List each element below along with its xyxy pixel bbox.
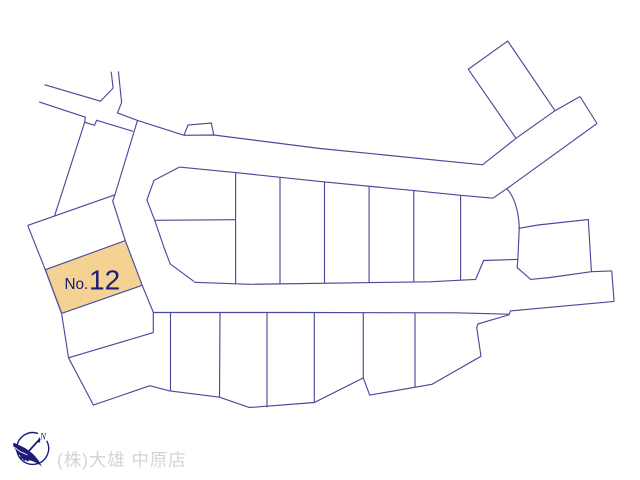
svg-text:N: N — [39, 432, 47, 442]
svg-text:No.: No. — [65, 276, 89, 293]
svg-text:12: 12 — [89, 265, 120, 296]
svg-text:(株)大雄 中原店: (株)大雄 中原店 — [57, 450, 187, 470]
